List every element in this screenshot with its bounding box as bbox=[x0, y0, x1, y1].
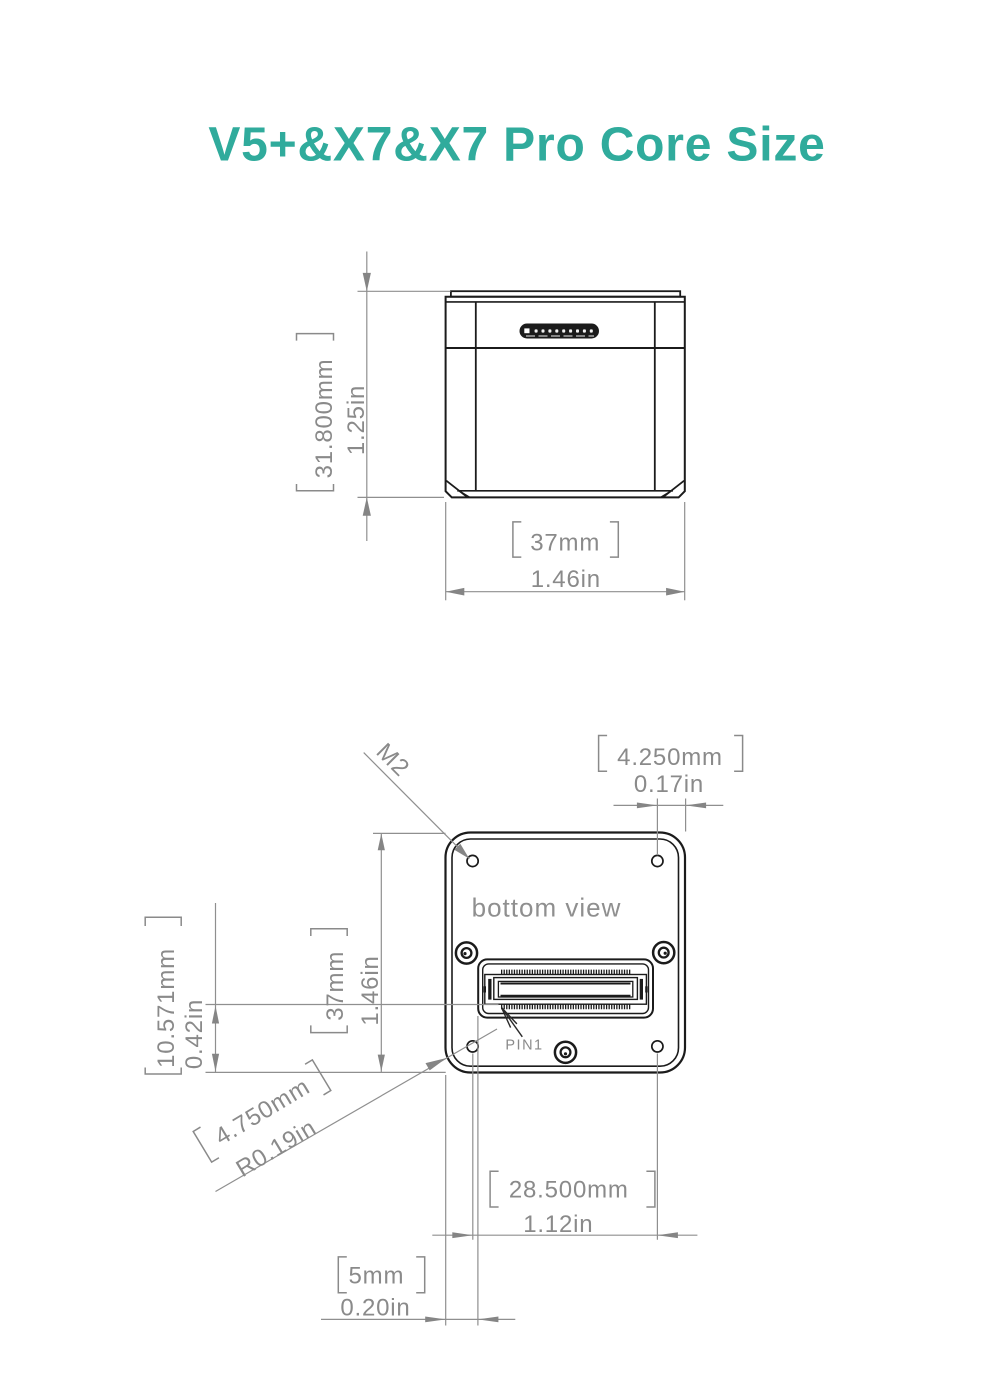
svg-text:1.25in: 1.25in bbox=[343, 385, 370, 455]
svg-text:37mm: 37mm bbox=[530, 530, 600, 557]
svg-text:0.20in: 0.20in bbox=[340, 1294, 410, 1321]
svg-text:0.42in: 0.42in bbox=[181, 999, 208, 1069]
svg-text:10.571mm: 10.571mm bbox=[153, 948, 180, 1068]
svg-text:0.17in: 0.17in bbox=[634, 771, 704, 798]
svg-text:5mm: 5mm bbox=[349, 1262, 405, 1289]
svg-text:V5+&X7&X7 Pro Core Size: V5+&X7&X7 Pro Core Size bbox=[208, 119, 825, 172]
svg-text:31.800mm: 31.800mm bbox=[311, 359, 338, 479]
svg-text:bottom view: bottom view bbox=[472, 893, 622, 923]
svg-text:1.46in: 1.46in bbox=[531, 566, 601, 593]
svg-text:PIN1: PIN1 bbox=[505, 1038, 543, 1054]
svg-text:37mm: 37mm bbox=[322, 951, 349, 1021]
svg-text:1.46in: 1.46in bbox=[357, 955, 384, 1025]
svg-text:28.500mm: 28.500mm bbox=[509, 1177, 629, 1204]
svg-text:1.12in: 1.12in bbox=[523, 1211, 593, 1238]
svg-text:4.250mm: 4.250mm bbox=[617, 744, 723, 771]
